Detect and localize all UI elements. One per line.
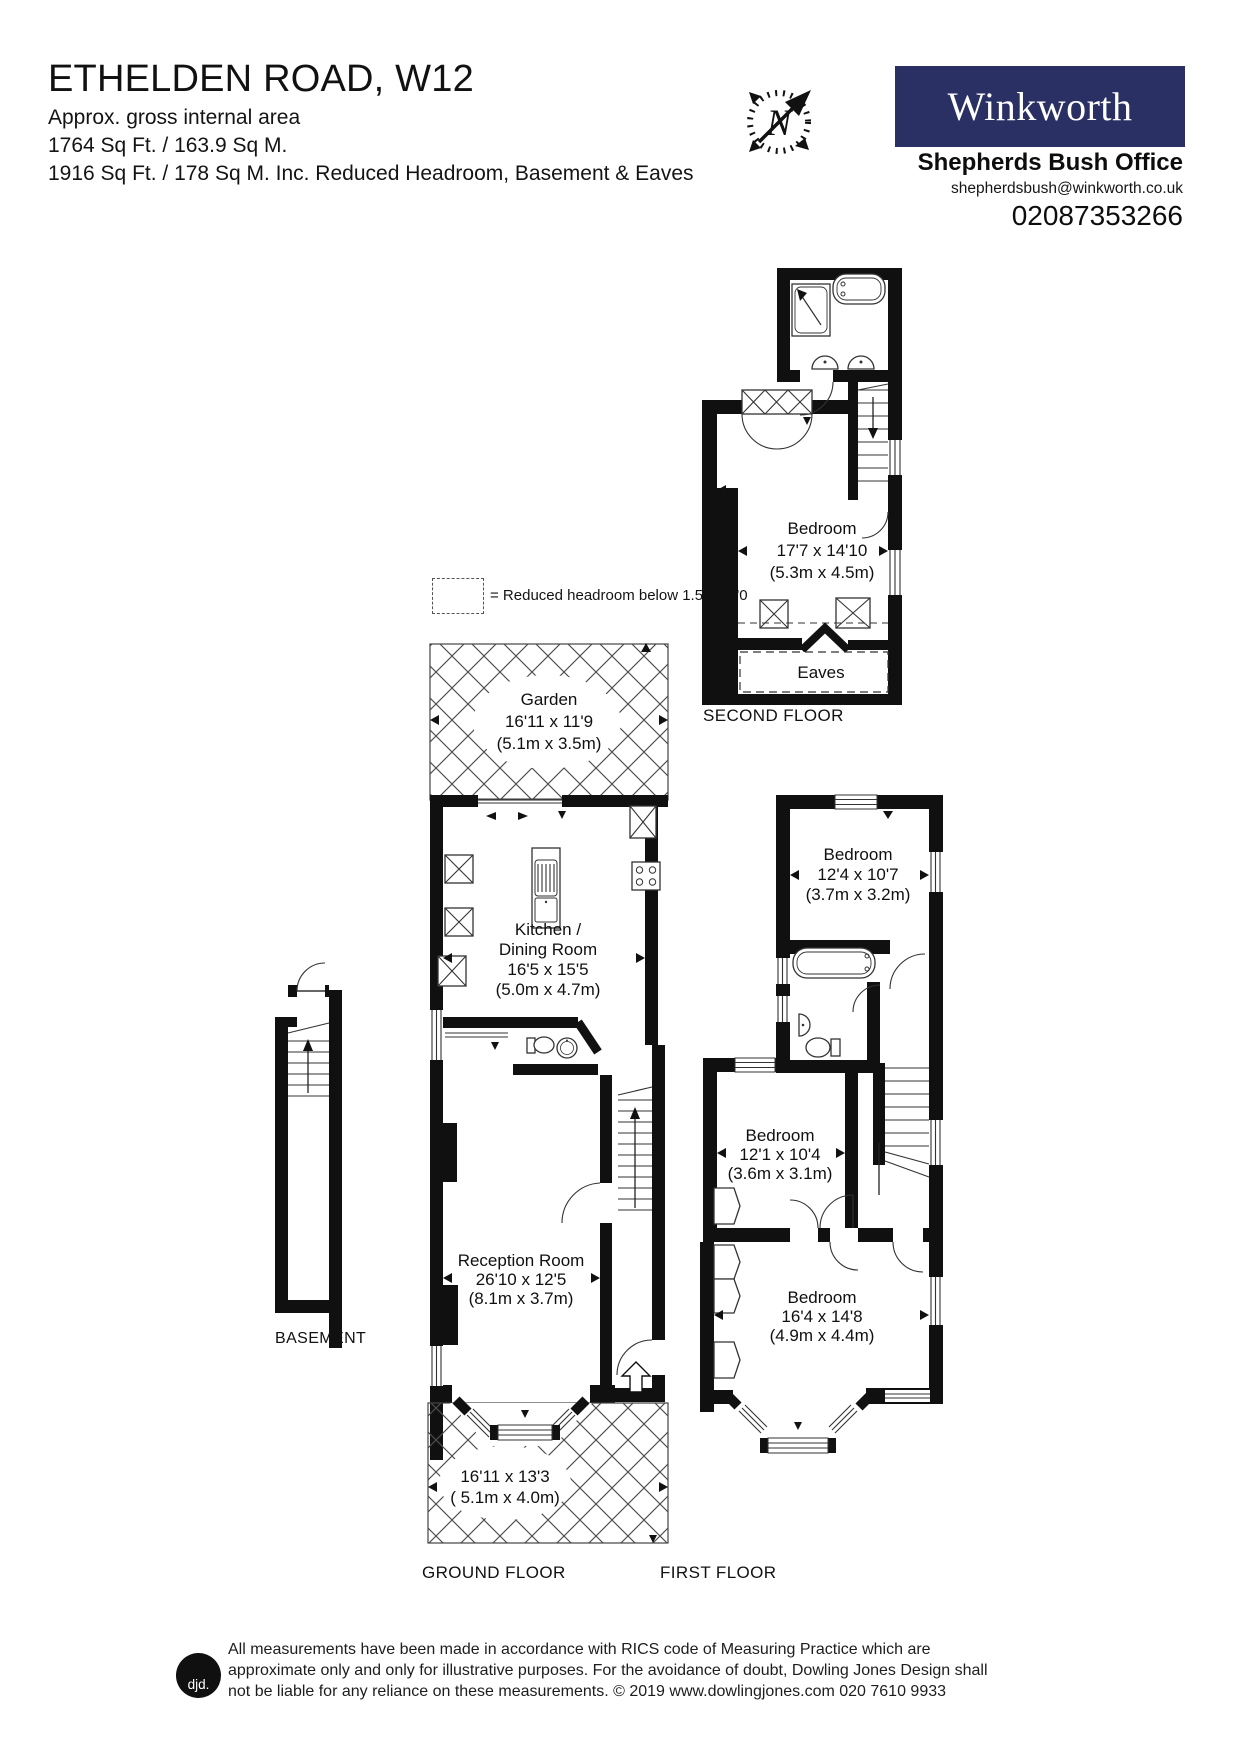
- caption-basement: BASEMENT: [275, 1330, 366, 1348]
- compass-icon: N: [737, 80, 821, 164]
- ground-floor-plan: [420, 640, 675, 1550]
- winkworth-logo: Winkworth: [895, 66, 1185, 147]
- room-name: Eaves: [797, 662, 844, 683]
- stairs-icon: [288, 1023, 329, 1096]
- room-label-first-bedroom-middle: Bedroom 12'1 x 10'4 (3.6m x 3.1m): [728, 1126, 833, 1183]
- room-dim-imperial: 17'7 x 14'10: [770, 540, 875, 562]
- toilet-icon: [806, 1038, 840, 1057]
- room-name: Bedroom: [770, 1288, 875, 1307]
- reduced-headroom-swatch: [432, 578, 484, 614]
- room-label-first-bedroom-front: Bedroom 16'4 x 14'8 (4.9m x 4.4m): [770, 1288, 875, 1345]
- room-label-second-bedroom: Bedroom 17'7 x 14'10 (5.3m x 4.5m): [770, 518, 875, 584]
- room-dim-imperial: 12'1 x 10'4: [728, 1145, 833, 1164]
- office-email: shepherdsbush@winkworth.co.uk: [918, 180, 1183, 198]
- page-title: ETHELDEN ROAD, W12: [48, 58, 474, 101]
- entrance-arrow-icon: [622, 1362, 650, 1392]
- room-dim-metric: (5.0m x 4.7m): [496, 980, 601, 1000]
- room-name: Garden: [497, 689, 602, 711]
- wardrobe-icon: [714, 1188, 740, 1378]
- basin-icon: [812, 356, 874, 369]
- room-label-kitchen: Kitchen / Dining Room 16'5 x 15'5 (5.0m …: [496, 920, 601, 1000]
- stairs-icon: [618, 1087, 652, 1210]
- area-line-2: 1916 Sq Ft. / 178 Sq M. Inc. Reduced Hea…: [48, 162, 694, 186]
- room-label-reception: Reception Room 26'10 x 12'5 (8.1m x 3.7m…: [458, 1251, 585, 1308]
- disclaimer-line-2: approximate only and only for illustrati…: [228, 1662, 988, 1680]
- kitchen-island-icon: [532, 848, 560, 928]
- toilet-icon: [527, 1037, 554, 1053]
- dimension-arrow-icon: [443, 953, 645, 1283]
- basin-icon: [799, 1014, 810, 1036]
- disclaimer-line-1: All measurements have been made in accor…: [228, 1641, 931, 1659]
- basin-icon: [557, 1038, 577, 1058]
- bay-window-icon: [728, 1396, 870, 1453]
- agency-block: Shepherds Bush Office shepherdsbush@wink…: [918, 149, 1183, 232]
- room-name: Dining Room: [496, 940, 601, 960]
- room-name: Bedroom: [728, 1126, 833, 1145]
- room-name: Kitchen /: [496, 920, 601, 940]
- room-dim-metric: (8.1m x 3.7m): [458, 1289, 585, 1308]
- caption-ground-floor: GROUND FLOOR: [422, 1563, 566, 1583]
- room-label-front-garden: 16'11 x 13'3 ( 5.1m x 4.0m): [450, 1466, 560, 1508]
- room-label-garden: Garden 16'11 x 11'9 (5.1m x 3.5m): [497, 689, 602, 755]
- door-icon: [297, 963, 325, 991]
- office-phone: 02087353266: [918, 200, 1183, 232]
- room-dim-metric: (5.3m x 4.5m): [770, 562, 875, 584]
- area-line-1: 1764 Sq Ft. / 163.9 Sq M.: [48, 134, 287, 158]
- stairs-icon: [858, 384, 888, 481]
- office-name: Shepherds Bush Office: [918, 149, 1183, 177]
- djd-logo-text: djd.: [188, 1677, 210, 1692]
- room-dim-imperial: 26'10 x 12'5: [458, 1270, 585, 1289]
- room-name: Reception Room: [458, 1251, 585, 1270]
- room-label-eaves: Eaves: [797, 662, 844, 683]
- bathtub-icon: [833, 274, 885, 304]
- disclaimer-line-3: not be liable for any reliance on these …: [228, 1683, 946, 1701]
- room-dim-metric: (4.9m x 4.4m): [770, 1326, 875, 1345]
- room-dim-imperial: 16'4 x 14'8: [770, 1307, 875, 1326]
- dormer-wall: [802, 628, 848, 650]
- room-dim-metric: (5.1m x 3.5m): [497, 733, 602, 755]
- pocket-door: [445, 1033, 508, 1050]
- subtitle: Approx. gross internal area: [48, 106, 300, 130]
- wardrobe-icon: [742, 390, 812, 414]
- brand-name: Winkworth: [947, 83, 1132, 130]
- sliding-door-arrows: [486, 811, 566, 820]
- bathtub-icon: [793, 948, 875, 978]
- room-label-first-bedroom-rear: Bedroom 12'4 x 10'7 (3.7m x 3.2m): [806, 845, 911, 905]
- wc-angled-wall: [578, 1022, 598, 1052]
- room-dim-metric: (3.7m x 3.2m): [806, 885, 911, 905]
- djd-logo: djd.: [176, 1653, 221, 1698]
- hob-icon: [632, 862, 660, 890]
- caption-second-floor: SECOND FLOOR: [703, 706, 844, 726]
- room-dim-metric: ( 5.1m x 4.0m): [450, 1487, 560, 1508]
- room-dim-metric: (3.6m x 3.1m): [728, 1164, 833, 1183]
- room-dim-imperial: 16'11 x 11'9: [497, 711, 602, 733]
- room-dim-imperial: 16'11 x 13'3: [450, 1466, 560, 1487]
- basement-walls: [275, 985, 342, 1348]
- room-dim-imperial: 16'5 x 15'5: [496, 960, 601, 980]
- room-name: Bedroom: [770, 518, 875, 540]
- room-dim-imperial: 12'4 x 10'7: [806, 865, 911, 885]
- room-name: Bedroom: [806, 845, 911, 865]
- caption-first-floor: FIRST FLOOR: [660, 1563, 777, 1583]
- second-floor-plan: [695, 235, 910, 715]
- floorplan-page: ETHELDEN ROAD, W12 Approx. gross interna…: [0, 0, 1239, 1754]
- basement-plan: [255, 955, 360, 1355]
- shower-icon: [792, 284, 830, 336]
